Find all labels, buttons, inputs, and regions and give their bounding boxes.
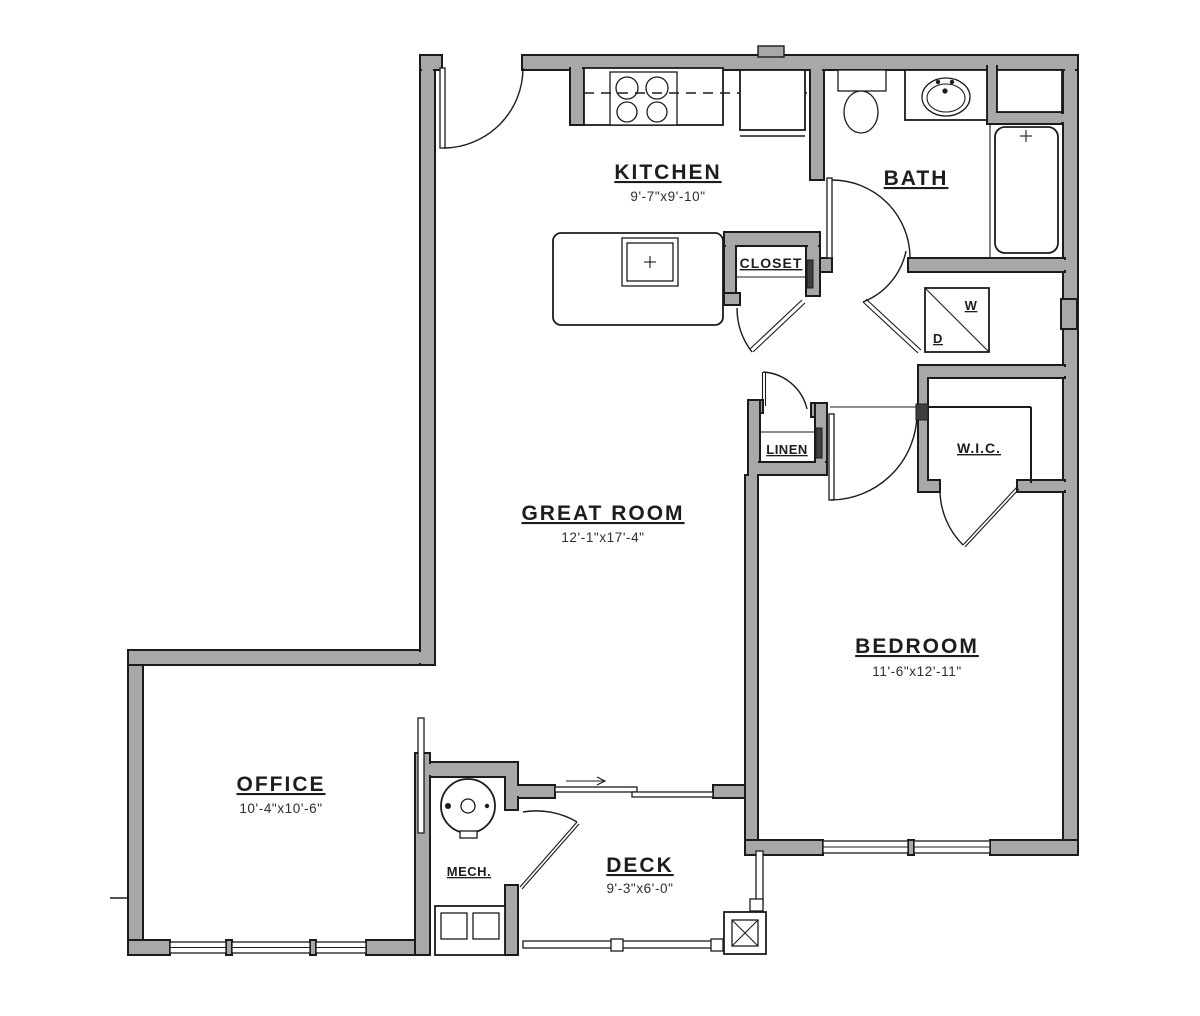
office-pocket-door bbox=[418, 718, 424, 833]
bedroom-dims: 11'-6"x12'-11" bbox=[872, 664, 961, 679]
room-label-office: OFFICE 10'-4"x10'-6" bbox=[237, 773, 326, 816]
bath-cabinet bbox=[997, 70, 1062, 112]
kitchen-dims: 9'-7"x9'-10" bbox=[630, 189, 705, 204]
room-label-linen: LINEN bbox=[766, 442, 808, 457]
closet-track bbox=[807, 260, 813, 288]
toilet-bowl bbox=[844, 91, 878, 133]
wic-label: W.I.C. bbox=[957, 440, 1001, 456]
rail-post bbox=[711, 939, 723, 951]
bedroom-label: BEDROOM bbox=[855, 635, 979, 658]
bath-fixtures bbox=[838, 70, 1062, 257]
office-dims: 10'-4"x10'-6" bbox=[239, 801, 322, 816]
wall-bump bbox=[758, 46, 784, 57]
burner-icon bbox=[616, 77, 638, 99]
windows bbox=[170, 841, 990, 953]
room-label-kitchen: KITCHEN 9'-7"x9'-10" bbox=[614, 161, 721, 204]
linen-door bbox=[763, 372, 808, 409]
linen-track bbox=[816, 428, 822, 458]
office-window bbox=[170, 942, 366, 953]
burner-icon bbox=[646, 77, 668, 99]
great-room-dims: 12'-1"x17'-4" bbox=[561, 530, 644, 545]
rail-post bbox=[611, 939, 623, 951]
refrigerator bbox=[740, 70, 805, 130]
mech-label: MECH. bbox=[447, 864, 491, 879]
toilet-tank bbox=[838, 70, 886, 91]
bathtub bbox=[995, 127, 1058, 253]
burner-icon bbox=[617, 102, 637, 122]
rail-post bbox=[750, 899, 763, 911]
room-label-closet: CLOSET bbox=[740, 255, 803, 271]
bath-label: BATH bbox=[884, 167, 949, 190]
linen-label: LINEN bbox=[766, 442, 808, 457]
closet-label: CLOSET bbox=[740, 255, 803, 271]
kitchen-label: KITCHEN bbox=[614, 161, 721, 184]
washer-label: W bbox=[965, 298, 978, 313]
bath-door bbox=[827, 178, 910, 258]
room-label-wic: W.I.C. bbox=[957, 440, 1001, 456]
burner-icon bbox=[647, 102, 667, 122]
office-label: OFFICE bbox=[237, 773, 326, 796]
bedroom-door bbox=[829, 404, 928, 500]
dryer-label: D bbox=[933, 331, 943, 346]
floor-plan-page: KITCHEN 9'-7"x9'-10" BATH CLOSET GREAT R… bbox=[0, 0, 1200, 1016]
room-label-great-room: GREAT ROOM 12'-1"x17'-4" bbox=[521, 502, 684, 545]
great-room-label: GREAT ROOM bbox=[521, 502, 684, 525]
floor-plan-drawing: KITCHEN 9'-7"x9'-10" BATH CLOSET GREAT R… bbox=[0, 0, 1200, 1016]
room-label-deck: DECK 9'-3"x6'-0" bbox=[606, 854, 674, 896]
wic-door bbox=[940, 487, 1019, 547]
room-label-mech: MECH. bbox=[447, 864, 491, 879]
sliding-glass-door bbox=[555, 777, 713, 797]
mech-door bbox=[520, 811, 579, 889]
room-label-bath: BATH bbox=[884, 167, 949, 190]
deck-rail bbox=[756, 851, 763, 905]
room-label-bedroom: BEDROOM 11'-6"x12'-11" bbox=[855, 635, 979, 679]
deck-label: DECK bbox=[606, 854, 674, 877]
deck-dims: 9'-3"x6'-0" bbox=[606, 881, 673, 896]
door-jamb bbox=[916, 404, 928, 420]
pantry-closet-door bbox=[737, 300, 805, 352]
bedroom-window bbox=[823, 841, 990, 853]
entry-door bbox=[440, 68, 523, 148]
